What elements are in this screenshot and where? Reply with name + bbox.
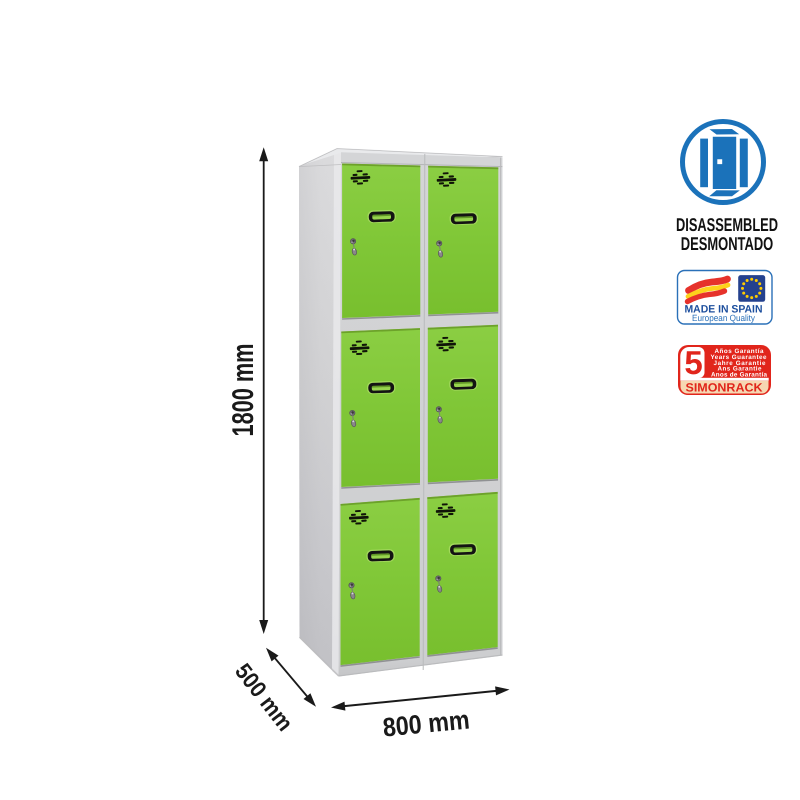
svg-text:Anos de Garantía: Anos de Garantía	[711, 372, 767, 379]
svg-text:SIMONRACK: SIMONRACK	[686, 380, 763, 394]
svg-text:5: 5	[684, 344, 702, 381]
svg-text:European Quality: European Quality	[692, 313, 755, 323]
svg-text:DISASSEMBLED: DISASSEMBLED	[676, 214, 778, 235]
svg-text:1800 mm: 1800 mm	[227, 344, 260, 437]
svg-text:DESMONTADO: DESMONTADO	[681, 233, 774, 254]
